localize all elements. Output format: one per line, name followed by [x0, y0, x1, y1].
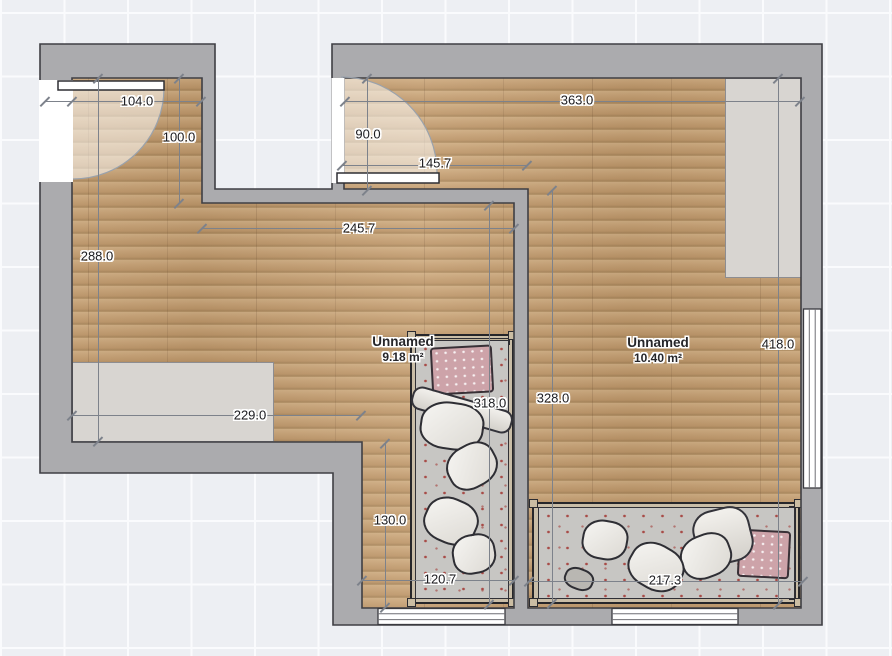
- room-area: 9.18 m²: [372, 350, 434, 364]
- dimension-label[interactable]: 363.0: [561, 93, 594, 108]
- plan-canvas[interactable]: 104.0100.0288.0363.090.0145.7245.7229.03…: [0, 0, 892, 656]
- dimension-label[interactable]: 100.0: [163, 130, 196, 145]
- dimension-label[interactable]: 217.3: [649, 573, 682, 588]
- dimension-label[interactable]: 229.0: [234, 408, 267, 423]
- room-name[interactable]: Unnamed: [627, 335, 689, 350]
- dimension-label[interactable]: 418.0: [762, 337, 795, 352]
- dimension-label[interactable]: 318.0: [474, 396, 507, 411]
- room-label-1[interactable]: Unnamed 9.18 m²: [372, 334, 434, 364]
- dimension-label[interactable]: 328.0: [537, 391, 570, 406]
- dimension-label[interactable]: 90.0: [355, 127, 380, 142]
- room-name[interactable]: Unnamed: [372, 334, 434, 349]
- dimension-label[interactable]: 104.0: [121, 94, 154, 109]
- dimension-label[interactable]: 130.0: [374, 513, 407, 528]
- dimension-line[interactable]: [72, 415, 361, 416]
- dimension-label[interactable]: 145.7: [419, 156, 452, 171]
- room-area: 10.40 m²: [627, 351, 689, 365]
- dimension-label[interactable]: 245.7: [343, 221, 376, 236]
- dimension-label[interactable]: 120.7: [424, 572, 457, 587]
- dimension-label[interactable]: 288.0: [81, 249, 114, 264]
- dimension-layer: 104.0100.0288.0363.090.0145.7245.7229.03…: [0, 0, 892, 656]
- room-label-2[interactable]: Unnamed 10.40 m²: [627, 335, 689, 365]
